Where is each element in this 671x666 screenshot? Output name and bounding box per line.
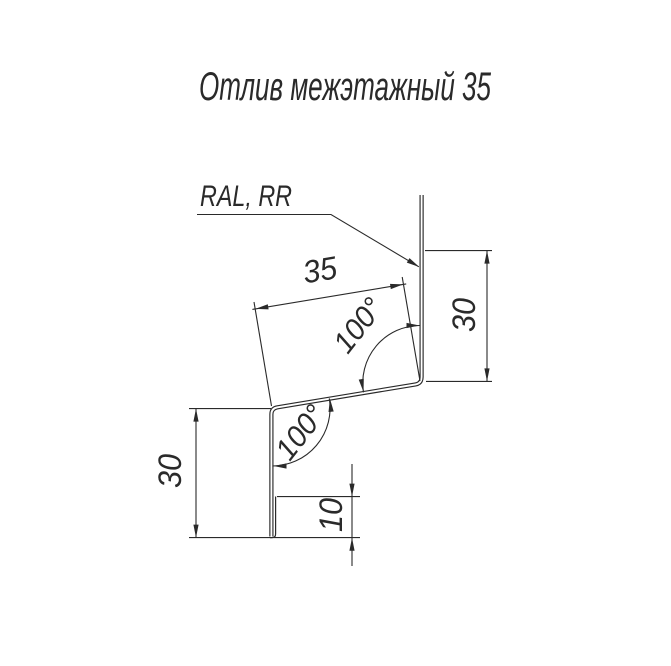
dim-arrow-icon: [193, 525, 198, 538]
drawing-title: Отлив межэтажный 35: [199, 65, 491, 109]
profile-outline: [271, 195, 421, 537]
arc-arrow-icon: [274, 463, 287, 468]
dimension-right-height: 30: [425, 251, 492, 382]
dim-label-10: 10: [313, 498, 349, 532]
extension-line: [402, 277, 420, 381]
coating-label: RAL, RR: [200, 180, 292, 213]
profile-sheet: [270, 195, 422, 538]
technical-drawing-page: Отлив межэтажный 35 RAL, RR 35 1: [0, 0, 671, 661]
dim-label-35: 35: [300, 249, 340, 290]
dim-arrow-icon: [484, 251, 489, 264]
dim-arrow-icon: [349, 538, 354, 551]
dimension-bottom-hem: 10: [277, 464, 360, 566]
dimension-upper-angle: 100°: [327, 292, 419, 392]
dim-label-right-30: 30: [446, 298, 482, 332]
dim-arrow-icon: [193, 409, 198, 422]
dim-arrow-icon: [484, 368, 489, 381]
angle-label-upper: 100°: [327, 292, 390, 360]
dim-arrow-icon: [255, 304, 268, 309]
arc-arrow-icon: [359, 379, 364, 392]
leader-arrow-icon: [407, 258, 420, 267]
extension-line: [254, 302, 272, 406]
dim-label-left-30: 30: [152, 454, 188, 488]
dim-arrow-icon: [390, 284, 403, 289]
profile-outline-gap: [271, 195, 421, 537]
dim-arrow-icon: [349, 484, 354, 497]
arc-arrow-icon: [407, 323, 420, 328]
drawing-canvas: Отлив межэтажный 35 RAL, RR 35 1: [0, 0, 671, 661]
dimension-line: [252, 284, 406, 310]
